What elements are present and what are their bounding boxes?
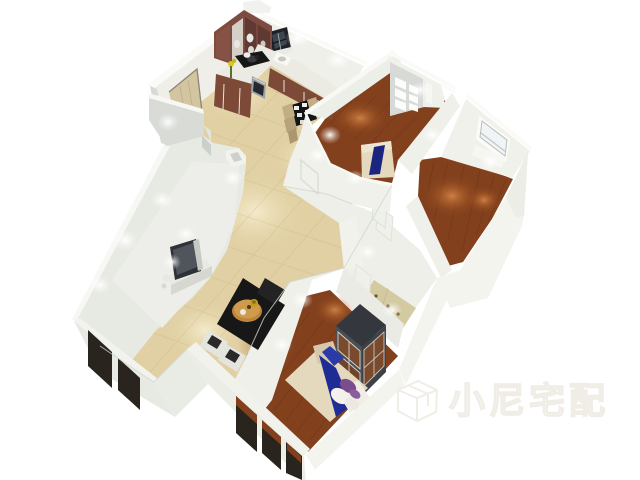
svg-text:小尼宅配: 小尼宅配 xyxy=(449,380,609,421)
